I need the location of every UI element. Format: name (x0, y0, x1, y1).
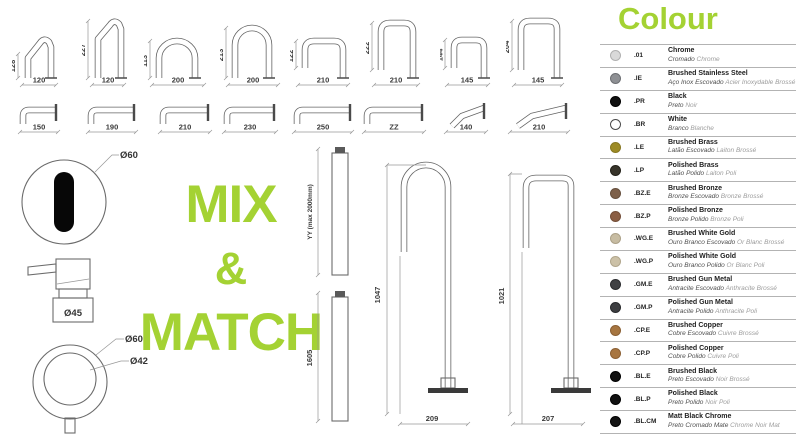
height-dim-label: 222 (366, 42, 371, 55)
colour-code: .GM.E (634, 281, 668, 288)
colour-legend-rows: .01 Chrome Cromado Chrome .IE Brushed St… (600, 44, 796, 434)
colour-row: .CP.P Polished Copper Cobre Polido Cuivr… (600, 342, 796, 365)
colour-sub-fr: Anthracite Poli (715, 308, 757, 315)
spout-tube (235, 28, 269, 78)
colour-subtitle: Aço Inox Escovado Acier Inoxydable Bross… (668, 79, 795, 88)
colour-subtitle: Ouro Branco Escovado Or Blanc Brossé (668, 239, 784, 248)
colour-name: Black (668, 93, 697, 102)
colour-row: .GM.E Brushed Gun Metal Antracite Escova… (600, 274, 796, 297)
colour-text: Brushed White Gold Ouro Branco Escovado … (668, 230, 784, 247)
colour-subtitle: Bronze Escovado Bronze Brossé (668, 193, 763, 202)
colour-sub-fr: Anthracite Brossé (726, 285, 777, 292)
colour-subtitle: Latão Escovado Laiton Brossé (668, 147, 756, 156)
colour-subtitle: Cobre Polido Cuivre Poli (668, 353, 739, 362)
colour-text: Polished Black Preto Polido Noir Poli (668, 390, 730, 407)
colour-sub-pt: Bronze Polido (668, 216, 708, 223)
colour-swatch (610, 302, 621, 313)
colour-name: Brushed Copper (668, 322, 759, 331)
colour-swatch (610, 279, 621, 290)
colour-sub-pt: Preto Cromado Mate (668, 422, 728, 429)
colour-code: .LP (634, 167, 668, 174)
colour-sub-pt: Preto (668, 102, 684, 109)
headline-line-3: MATCH (140, 306, 322, 359)
mixer-side-view-drawing: Ø45 (26, 254, 108, 324)
colour-sub-fr: Noir Brossé (716, 376, 750, 383)
headline-line-1: MIX (185, 178, 276, 231)
colour-code: .WG.P (634, 258, 668, 265)
colour-row: .WG.P Polished White Gold Ouro Branco Po… (600, 251, 796, 274)
spout-tube (404, 165, 448, 388)
riser-dim-label: 1605 (305, 350, 314, 367)
colour-code: .BL.CM (634, 418, 668, 425)
colour-subtitle: Ouro Branco Polido Or Blanc Poli (668, 262, 764, 271)
base-flange (551, 388, 591, 393)
colour-code: .BL.E (634, 373, 668, 380)
width-dim-label: 145 (532, 76, 545, 85)
length-dim-label: 250 (317, 123, 330, 132)
colour-sub-pt: Latão Polido (668, 170, 704, 177)
leader-line-outer (96, 339, 124, 355)
colour-text: Brushed Copper Cobre Escovado Cuivre Bro… (668, 322, 759, 339)
colour-code: .GM.P (634, 304, 668, 311)
colour-name: Brushed Stainless Steel (668, 70, 795, 79)
colour-text: Polished Gun Metal Antracite Polido Anth… (668, 299, 757, 316)
colour-text: Polished Bronze Bronze Polido Bronze Pol… (668, 207, 744, 224)
width-dim-label: 210 (390, 76, 403, 85)
colour-code: .PR (634, 98, 668, 105)
colour-name: White (668, 116, 714, 125)
colour-swatch (610, 416, 621, 427)
colour-name: Brushed Gun Metal (668, 276, 777, 285)
floor-spout-drawing-2: 1021 207 (492, 136, 604, 432)
colour-sub-pt: Cobre Polido (668, 353, 706, 360)
colour-code: .CP.P (634, 350, 668, 357)
deck-spout-drawing-4: 213 200 (220, 12, 284, 90)
colour-text: Polished Copper Cobre Polido Cuivre Poli (668, 345, 739, 362)
colour-name: Chrome (668, 47, 720, 56)
colour-swatch (610, 119, 621, 130)
width-dim-label: 120 (102, 76, 115, 85)
colour-subtitle: Cobre Escovado Cuivre Brossé (668, 330, 759, 339)
colour-code: .01 (634, 52, 668, 59)
headline-line-2: & (215, 246, 248, 291)
riser-cap (335, 147, 345, 153)
length-dim-label: 150 (33, 123, 46, 132)
colour-text: White Branco Blanche (668, 116, 714, 133)
sensor-top-view-drawing: Ø60 (16, 138, 146, 252)
wall-spout-drawing-4: 230 (218, 102, 280, 138)
colour-swatch (610, 348, 621, 359)
spout-tube (98, 22, 121, 78)
colour-legend-title: Colour (618, 1, 718, 37)
colour-row: .BL.CM Matt Black Chrome Preto Cromado M… (600, 411, 796, 434)
colour-row: .BR White Branco Blanche (600, 114, 796, 137)
colour-subtitle: Bronze Polido Bronze Poli (668, 216, 744, 225)
height-dim-label: 204 (506, 40, 511, 53)
colour-swatch (610, 394, 621, 405)
colour-swatch (610, 50, 621, 61)
height-dim-line (508, 172, 522, 424)
colour-swatch (610, 96, 621, 107)
width-dim-label: 145 (461, 76, 474, 85)
colour-swatch (610, 73, 621, 84)
colour-code: .CP.E (634, 327, 668, 334)
colour-subtitle: Preto Noir (668, 102, 697, 111)
riser-cap (335, 291, 345, 297)
colour-name: Polished White Gold (668, 253, 764, 262)
deck-spout-drawing-5: 122 210 (290, 12, 352, 90)
colour-subtitle: Branco Blanche (668, 125, 714, 134)
colour-sub-pt: Antracite Escovado (668, 285, 724, 292)
length-dim-label: 230 (244, 123, 257, 132)
colour-code: .BZ.P (634, 213, 668, 220)
height-dim-label: 113 (144, 55, 149, 67)
colour-text: Matt Black Chrome Preto Cromado Mate Chr… (668, 413, 780, 430)
colour-text: Black Preto Noir (668, 93, 697, 110)
handle-stem (65, 418, 75, 433)
leader-line (95, 155, 119, 172)
colour-name: Polished Black (668, 390, 730, 399)
spout-tube (454, 40, 484, 78)
colour-code: .BR (634, 121, 668, 128)
colour-sub-pt: Preto Polido (668, 399, 703, 406)
colour-row: .BL.E Brushed Black Preto Escovado Noir … (600, 365, 796, 388)
height-dim-label: 213 (220, 49, 225, 62)
colour-sub-fr: Chrome Noir Mat (730, 422, 779, 429)
wall-spout-drawing-8: 210 (504, 102, 572, 138)
colour-row: .01 Chrome Cromado Chrome (600, 45, 796, 68)
colour-swatch (610, 211, 621, 222)
base-dim-label: 209 (426, 414, 439, 423)
colour-sub-pt: Bronze Escovado (668, 193, 719, 200)
width-dim-label: 200 (247, 76, 260, 85)
colour-name: Polished Copper (668, 345, 739, 354)
colour-swatch (610, 165, 621, 176)
mixer-collar (59, 289, 87, 298)
wall-spout-drawing-1: 150 (14, 102, 62, 138)
colour-code: .IE (634, 75, 668, 82)
base-dim-label: 207 (542, 414, 555, 423)
colour-subtitle: Antracite Polido Anthracite Poli (668, 308, 757, 317)
wall-spout-drawing-3: 210 (154, 102, 214, 138)
handle-top-view-drawing: Ø60 Ø42 (18, 326, 158, 434)
colour-text: Brushed Gun Metal Antracite Escovado Ant… (668, 276, 777, 293)
deck-spout-drawing-3: 113 200 (144, 12, 210, 90)
colour-sub-fr: Blanche (690, 125, 714, 132)
riser-dim-line (316, 147, 320, 277)
colour-sub-fr: Cuivre Poli (707, 353, 738, 360)
colour-sub-pt: Cobre Escovado (668, 330, 716, 337)
colour-text: Brushed Stainless Steel Aço Inox Escovad… (668, 70, 795, 87)
leader-line-inner (90, 361, 129, 370)
colour-subtitle: Preto Polido Noir Poli (668, 399, 730, 408)
riser-drawing-2: 1605 (304, 288, 356, 430)
catalog-page: 128 120 227 120 113 200 213 200 122 210 (0, 0, 800, 434)
colour-sub-pt: Aço Inox Escovado (668, 79, 724, 86)
colour-name: Polished Brass (668, 162, 736, 171)
deck-spout-drawing-2: 227 120 (82, 12, 128, 90)
spout-tube (159, 41, 195, 78)
colour-sub-fr: Bronze Brossé (721, 193, 764, 200)
colour-code: .BL.P (634, 396, 668, 403)
colour-sub-fr: Cuivre Brossé (718, 330, 759, 337)
spout-tube (521, 21, 557, 78)
colour-code: .WG.E (634, 235, 668, 242)
spout-tube (305, 41, 343, 78)
colour-row: .BL.P Polished Black Preto Polido Noir P… (600, 388, 796, 411)
height-dim-label: 122 (290, 50, 295, 63)
height-dim-label: 128 (12, 60, 17, 73)
wall-spout-drawing-2: 190 (82, 102, 140, 138)
colour-subtitle: Latão Polido Laiton Poli (668, 170, 736, 179)
height-dim-label: 1047 (373, 287, 382, 304)
colour-name: Brushed Black (668, 368, 750, 377)
colour-code: .LE (634, 144, 668, 151)
riser-tube (332, 297, 348, 421)
colour-sub-fr: Bronze Poli (710, 216, 743, 223)
mixer-lever (28, 264, 56, 275)
colour-text: Brushed Bronze Bronze Escovado Bronze Br… (668, 185, 763, 202)
colour-text: Chrome Cromado Chrome (668, 47, 720, 64)
length-dim-label: 190 (106, 123, 119, 132)
deck-spout-drawing-8: 204 145 (506, 12, 566, 90)
colour-swatch (610, 142, 621, 153)
colour-sub-fr: Or Blanc Poli (727, 262, 765, 269)
riser-drawing-1: YY (max 2000mm) (304, 144, 356, 282)
colour-name: Brushed White Gold (668, 230, 784, 239)
colour-subtitle: Preto Cromado Mate Chrome Noir Mat (668, 422, 780, 431)
colour-row: .CP.E Brushed Copper Cobre Escovado Cuiv… (600, 320, 796, 343)
colour-swatch (610, 325, 621, 336)
colour-row: .IE Brushed Stainless Steel Aço Inox Esc… (600, 68, 796, 91)
deck-spout-drawing-1: 128 120 (12, 12, 60, 90)
colour-swatch (610, 371, 621, 382)
colour-row: .PR Black Preto Noir (600, 91, 796, 114)
colour-sub-fr: Laiton Poli (706, 170, 736, 177)
sensor-window (54, 172, 74, 232)
colour-sub-fr: Or Blanc Brossé (737, 239, 784, 246)
colour-name: Brushed Brass (668, 139, 756, 148)
colour-code: .BZ.E (634, 190, 668, 197)
colour-name: Matt Black Chrome (668, 413, 780, 422)
handle-inner-ring (44, 353, 96, 405)
colour-row: .GM.P Polished Gun Metal Antracite Polid… (600, 297, 796, 320)
mixer-detail-line (57, 279, 89, 284)
colour-text: Polished White Gold Ouro Branco Polido O… (668, 253, 764, 270)
colour-sub-pt: Ouro Branco Polido (668, 262, 725, 269)
width-dim-label: 210 (317, 76, 330, 85)
colour-swatch (610, 188, 621, 199)
width-dim-label: 200 (172, 76, 185, 85)
colour-sub-pt: Branco (668, 125, 689, 132)
riser-dim-line (316, 291, 320, 423)
colour-sub-pt: Cromado (668, 56, 695, 63)
colour-sub-fr: Acier Inoxydable Brossé (725, 79, 795, 86)
colour-subtitle: Antracite Escovado Anthracite Brossé (668, 285, 777, 294)
mixer-body (56, 259, 90, 289)
colour-sub-fr: Laiton Brossé (716, 147, 756, 154)
deck-spout-drawing-7: 144 145 (440, 12, 492, 90)
spout-tube (526, 178, 571, 388)
colour-name: Polished Bronze (668, 207, 744, 216)
mixer-base-diameter-label: Ø45 (64, 308, 83, 319)
height-dim-label: 1021 (497, 288, 506, 305)
colour-swatch (610, 256, 621, 267)
colour-sub-pt: Latão Escovado (668, 147, 715, 154)
colour-subtitle: Preto Escovado Noir Brossé (668, 376, 750, 385)
colour-sub-pt: Preto Escovado (668, 376, 714, 383)
height-dim-label: 144 (440, 48, 445, 61)
colour-row: .BZ.P Polished Bronze Bronze Polido Bron… (600, 205, 796, 228)
colour-sub-fr: Chrome (697, 56, 720, 63)
colour-name: Polished Gun Metal (668, 299, 757, 308)
riser-dim-label: YY (max 2000mm) (307, 184, 314, 240)
colour-text: Brushed Black Preto Escovado Noir Brossé (668, 368, 750, 385)
wall-spout-drawing-5: 250 (288, 102, 356, 138)
colour-text: Polished Brass Latão Polido Laiton Poli (668, 162, 736, 179)
colour-sub-fr: Noir Poli (705, 399, 730, 406)
colour-subtitle: Cromado Chrome (668, 56, 720, 65)
colour-row: .BZ.E Brushed Bronze Bronze Escovado Bro… (600, 182, 796, 205)
spout-tube (28, 40, 51, 78)
colour-swatch (610, 233, 621, 244)
colour-text: Brushed Brass Latão Escovado Laiton Bros… (668, 139, 756, 156)
spout-tube (381, 23, 413, 78)
colour-sub-pt: Ouro Branco Escovado (668, 239, 735, 246)
length-dim-label: 210 (533, 123, 546, 132)
sensor-diameter-label: Ø60 (120, 150, 138, 161)
colour-sub-fr: Noir (685, 102, 697, 109)
colour-row: .LE Brushed Brass Latão Escovado Laiton … (600, 137, 796, 160)
base-flange (428, 388, 468, 393)
width-dim-label: 120 (33, 76, 46, 85)
colour-name: Brushed Bronze (668, 185, 763, 194)
length-dim-label: 210 (179, 123, 192, 132)
deck-spout-drawing-6: 222 210 (366, 12, 422, 90)
colour-row: .LP Polished Brass Latão Polido Laiton P… (600, 159, 796, 182)
riser-tube (332, 153, 348, 275)
colour-row: .WG.E Brushed White Gold Ouro Branco Esc… (600, 228, 796, 251)
floor-spout-drawing-1: 1047 209 (366, 130, 484, 432)
colour-sub-pt: Antracite Polido (668, 308, 714, 315)
mix-and-match-headline: MIX & MATCH (138, 178, 324, 359)
height-dim-label: 227 (82, 44, 87, 57)
